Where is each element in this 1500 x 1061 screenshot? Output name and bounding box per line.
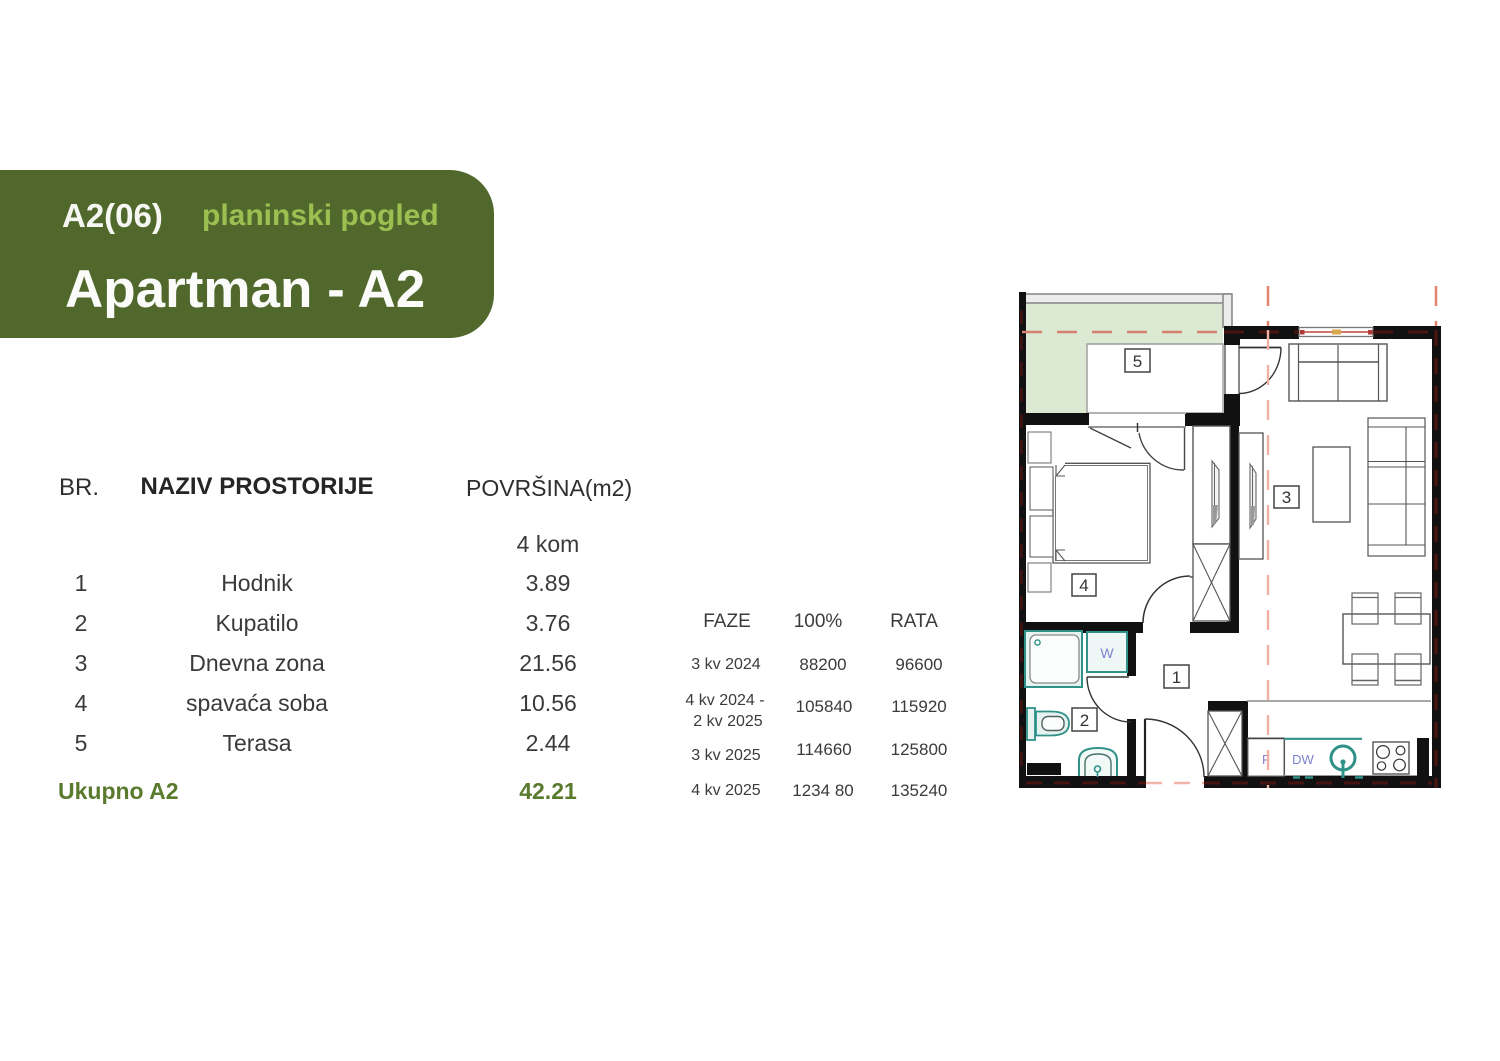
svg-text:3: 3: [1282, 488, 1291, 507]
svg-text:2: 2: [1080, 711, 1089, 730]
svg-text:DW: DW: [1292, 752, 1314, 767]
svg-text:5: 5: [1133, 352, 1142, 371]
svg-text:1: 1: [1172, 668, 1181, 687]
svg-text:4: 4: [1079, 576, 1088, 595]
svg-text:W: W: [1100, 645, 1114, 661]
